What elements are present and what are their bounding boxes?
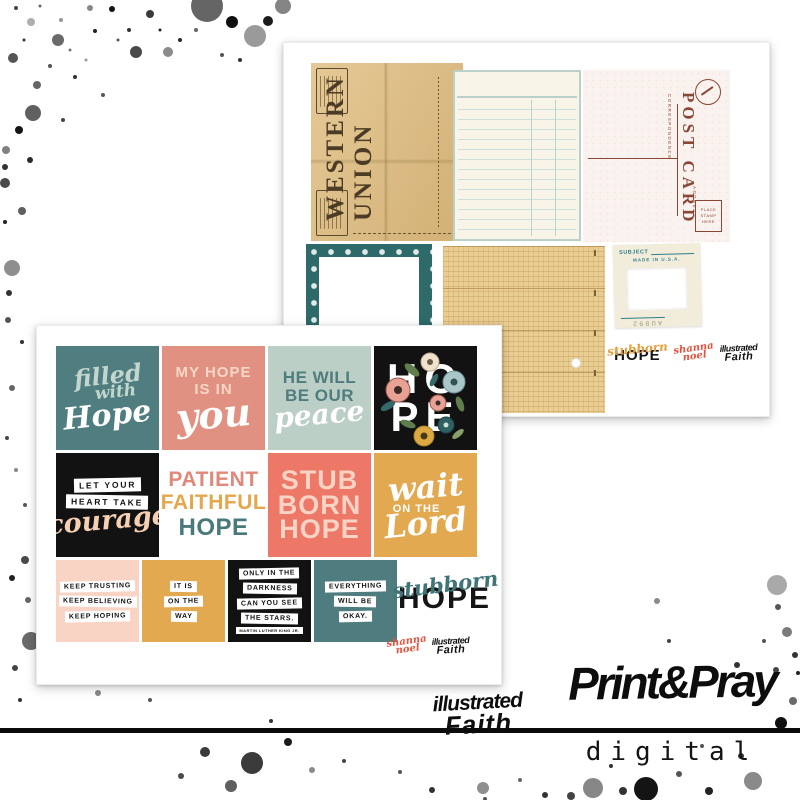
label-chip: OKAY. — [339, 610, 372, 622]
quote-credit-chip: MARTIN LUTHER KING JR. — [236, 627, 302, 634]
label-chip: EVERYTHING — [325, 580, 386, 592]
back-sheet-branding: stubborn HOPE shanna noel illustrated Fa… — [607, 343, 758, 363]
telegram-form-box — [316, 190, 348, 236]
illustrated-faith-logo: illustrated Faith — [720, 344, 758, 363]
label-chip: KEEP HOPING — [65, 610, 131, 622]
card-text: you — [175, 395, 253, 436]
card-darkness-stars-quote: ONLY IN THE DARKNESS CAN YOU SEE THE STA… — [228, 560, 311, 642]
illustrated-faith-logo: illustrated Faith — [432, 637, 470, 656]
label-chip: WILL BE — [334, 595, 376, 607]
card-text: wait — [387, 469, 464, 504]
label-chip: CAN YOU SEE — [237, 597, 302, 609]
card-text: HOPE — [178, 515, 248, 541]
label-chip: IT IS — [170, 580, 197, 591]
card-everything-will-be-okay: EVERYTHING WILL BE OKAY. — [314, 560, 397, 642]
card-stubborn-hope: STUB BORN HOPE — [268, 453, 371, 557]
ledger-paper — [453, 70, 581, 241]
front-sheet-cards: filled with Hope MY HOPE IS IN you HE WI… — [36, 325, 502, 685]
shanna-noel-logo: shanna noel — [673, 342, 715, 363]
card-text: Lord — [383, 504, 469, 541]
made-in-usa-label: MADE IN U.S.A. — [613, 256, 700, 263]
card-text: HE WILL — [283, 369, 356, 388]
postcard-divider — [588, 158, 677, 159]
card-hope-floral: HO PE — [374, 346, 477, 450]
label-chip: WAY — [171, 610, 197, 621]
print-and-pray-logo: Print&Pray — [551, 648, 792, 717]
card-patient-faithful-hope: PATIENT FAITHFUL HOPE — [162, 453, 265, 557]
label-chip: DARKNESS — [243, 583, 297, 595]
stamp-box: PLACE STAMP HERE — [695, 200, 722, 232]
grid-paper-ticks — [594, 250, 596, 409]
front-sheet-branding: shanna noel illustrated Faith — [387, 638, 470, 655]
hole-punch-dot-icon — [571, 358, 581, 368]
ledger-lines — [458, 100, 576, 236]
label-chip: THE STARS. — [241, 613, 298, 625]
card-heart-take-courage: LET YOUR HEART TAKE courage — [56, 453, 159, 557]
card-text: FAITHFUL — [162, 492, 265, 515]
product-preview: WESTERN UNION POST CARD CORRESPONDENCE A… — [0, 0, 800, 800]
telegram-fine-print — [353, 233, 453, 234]
ledger-column-line — [531, 100, 532, 236]
card-wait-on-the-lord: wait ON THE Lord — [374, 453, 477, 557]
card-filled-with-hope: filled with Hope — [56, 346, 159, 450]
divider-line — [0, 728, 800, 733]
label-chip: ON THE — [164, 595, 203, 607]
western-union-word: UNION — [351, 75, 376, 221]
card-text: HOPE — [279, 517, 360, 542]
card-keep-trusting: KEEP TRUSTING KEEP BELIEVING KEEP HOPING — [56, 560, 139, 642]
slide-stamp-code: AU092 — [631, 318, 662, 327]
vintage-postcard: POST CARD CORRESPONDENCE ADDRESS PLACE S… — [583, 70, 730, 242]
slide-subject-row: SUBJECT — [619, 248, 694, 256]
card-text: Hope — [62, 397, 153, 436]
illustrated-faith-logo-large: illustrated Faith — [427, 691, 529, 738]
label-chip: KEEP TRUSTING — [60, 580, 135, 593]
card-text: MY HOPE — [176, 364, 252, 381]
western-union-telegram: WESTERN UNION — [311, 63, 463, 241]
slide-window — [627, 267, 688, 311]
photo-slide-mount: SUBJECT MADE IN U.S.A. AU092 — [613, 243, 702, 328]
label-chip: KEEP BELIEVING — [59, 595, 137, 607]
subject-blank-line — [651, 249, 694, 255]
floral-illustration-icon — [374, 346, 477, 450]
postcard-divider — [677, 104, 678, 216]
label-chip: LET YOUR — [74, 477, 142, 492]
label-chip: ONLY IN THE — [239, 567, 300, 579]
card-it-is-on-the-way: IT IS ON THE WAY — [142, 560, 225, 642]
card-he-will-be-our-peace: HE WILL BE OUR peace — [268, 346, 371, 450]
digital-label: digital — [560, 737, 784, 767]
card-my-hope-is-in-you: MY HOPE IS IN you — [162, 346, 265, 450]
shanna-noel-logo: shanna noel — [386, 636, 428, 657]
stubborn-hope-wordart: stubborn HOPE — [392, 574, 497, 614]
card-text: STUB — [281, 468, 359, 493]
telegram-fine-print — [438, 77, 439, 227]
stubborn-hope-logo: stubborn HOPE — [607, 343, 668, 363]
ledger-header — [457, 72, 577, 98]
card-text: peace — [273, 398, 365, 431]
ledger-column-line — [555, 100, 556, 236]
card-text: PATIENT — [168, 469, 258, 492]
subject-label: SUBJECT — [619, 249, 648, 256]
postcard-correspondence-label: CORRESPONDENCE — [667, 94, 672, 160]
postal-crest-icon — [695, 79, 721, 105]
stamp-box-label: HERE — [702, 219, 715, 225]
